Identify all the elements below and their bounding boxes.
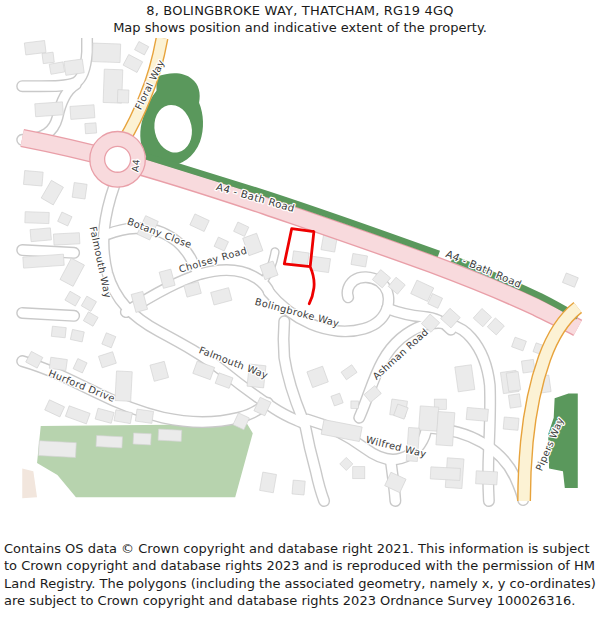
building	[419, 406, 439, 431]
building	[99, 352, 117, 368]
building	[53, 233, 79, 245]
building	[123, 54, 143, 72]
building	[341, 365, 357, 380]
copyright-notice: Contains OS data © Crown copyright and d…	[0, 538, 600, 625]
building	[30, 228, 51, 242]
building	[65, 406, 90, 424]
building	[430, 467, 460, 481]
road-label-a4: A4	[129, 158, 141, 172]
building	[24, 41, 46, 55]
building	[25, 212, 49, 224]
building	[65, 291, 81, 306]
building	[70, 329, 84, 341]
building	[292, 480, 305, 495]
beige-area	[22, 469, 37, 499]
building	[455, 365, 475, 392]
building	[158, 429, 182, 441]
building	[72, 183, 87, 199]
building	[92, 43, 120, 62]
building	[234, 222, 249, 236]
building	[473, 308, 491, 326]
building	[115, 371, 132, 401]
building	[351, 253, 368, 267]
building	[476, 471, 498, 485]
building	[85, 123, 97, 134]
map-svg: Floral Way A4 A4 - Bath Road A4 - Bath R…	[0, 38, 600, 538]
building	[83, 312, 98, 326]
building	[351, 401, 358, 408]
building	[35, 102, 64, 117]
building	[135, 409, 153, 423]
building	[95, 408, 114, 423]
building	[321, 420, 362, 442]
building	[49, 62, 64, 74]
building	[135, 41, 149, 54]
building	[521, 359, 535, 373]
map-container: Floral Way A4 A4 - Bath Road A4 - Bath R…	[0, 38, 600, 538]
road-label-bolingbroke-way: Bolingbroke Way	[254, 296, 341, 329]
building	[96, 435, 122, 447]
page: 8, BOLINGBROKE WAY, THATCHAM, RG19 4GQ M…	[0, 0, 600, 625]
building	[81, 296, 96, 311]
building	[102, 333, 116, 348]
property-address-title: 8, BOLINGBROKE WAY, THATCHAM, RG19 4GQ	[0, 0, 600, 18]
map-description: Map shows position and indicative extent…	[0, 18, 600, 35]
building	[211, 288, 232, 305]
building	[42, 52, 54, 63]
building	[45, 400, 65, 417]
building	[331, 393, 343, 406]
building	[117, 90, 129, 103]
building	[307, 366, 328, 387]
building	[436, 412, 455, 446]
building	[340, 457, 353, 470]
building	[353, 467, 365, 479]
building	[506, 372, 520, 392]
building	[39, 441, 77, 458]
building	[70, 105, 95, 120]
building	[310, 256, 330, 272]
building	[133, 433, 151, 445]
building	[190, 214, 209, 232]
building	[73, 359, 87, 373]
building	[150, 361, 169, 381]
building	[58, 212, 72, 226]
property-outline	[284, 229, 314, 304]
building	[41, 180, 63, 205]
building	[51, 326, 66, 338]
building	[214, 237, 228, 251]
building	[23, 254, 64, 268]
building	[508, 394, 521, 408]
building	[503, 417, 519, 430]
building	[487, 318, 504, 335]
building	[562, 273, 578, 287]
building	[466, 407, 488, 421]
building	[24, 171, 44, 186]
building	[260, 472, 277, 493]
building	[64, 59, 84, 75]
building	[512, 337, 527, 351]
map-header: 8, BOLINGBROKE WAY, THATCHAM, RG19 4GQ M…	[0, 0, 600, 38]
